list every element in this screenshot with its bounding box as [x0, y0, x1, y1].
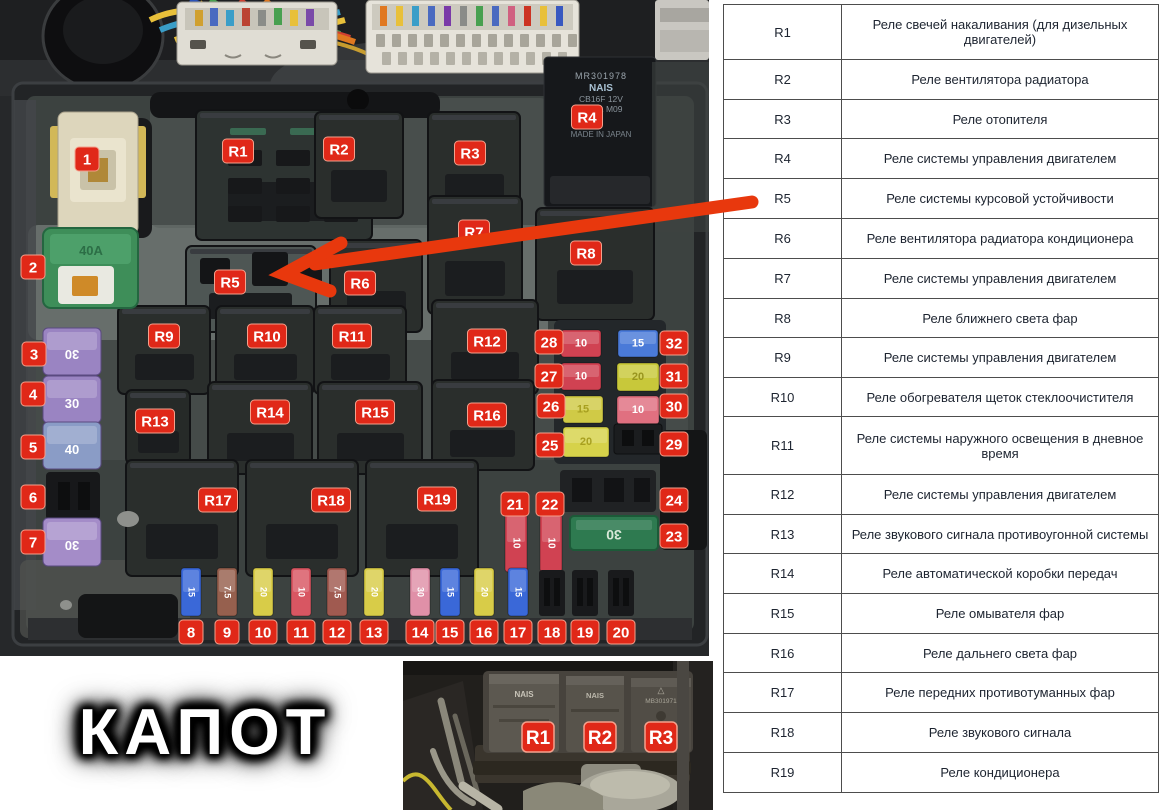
svg-text:30: 30	[666, 398, 683, 415]
svg-text:R17: R17	[204, 492, 232, 509]
svg-text:20: 20	[613, 624, 630, 641]
svg-text:28: 28	[541, 334, 558, 351]
svg-text:R14: R14	[256, 404, 284, 421]
svg-text:32: 32	[666, 335, 683, 352]
svg-text:20: 20	[632, 371, 644, 383]
svg-text:R8: R8	[576, 245, 595, 262]
svg-text:R9: R9	[154, 328, 173, 345]
svg-text:5: 5	[29, 439, 37, 456]
svg-text:20: 20	[370, 587, 380, 597]
svg-text:14: 14	[412, 624, 429, 641]
svg-text:21: 21	[507, 496, 524, 513]
svg-text:15: 15	[446, 587, 456, 597]
svg-text:NAIS: NAIS	[586, 691, 604, 700]
svg-text:3: 3	[30, 346, 38, 363]
svg-text:7.5: 7.5	[223, 586, 233, 599]
svg-text:20: 20	[259, 587, 269, 597]
svg-text:R16: R16	[473, 407, 501, 424]
svg-text:NAIS: NAIS	[514, 690, 534, 699]
svg-text:15: 15	[187, 587, 197, 597]
svg-text:10: 10	[510, 537, 521, 549]
svg-text:15: 15	[514, 587, 524, 597]
svg-text:40: 40	[65, 442, 79, 457]
svg-text:R12: R12	[473, 333, 501, 350]
svg-text:R7: R7	[464, 224, 483, 241]
svg-text:R3: R3	[460, 145, 479, 162]
svg-text:R2: R2	[329, 141, 348, 158]
svg-text:CB16F 12V: CB16F 12V	[579, 94, 623, 104]
svg-text:25: 25	[542, 437, 559, 454]
svg-text:10: 10	[255, 624, 272, 641]
svg-text:30: 30	[65, 347, 79, 362]
svg-text:20: 20	[480, 587, 490, 597]
svg-text:15: 15	[632, 337, 644, 349]
svg-text:R1: R1	[526, 728, 551, 749]
svg-text:1: 1	[83, 151, 91, 168]
svg-text:R18: R18	[317, 492, 345, 509]
svg-text:30: 30	[65, 396, 79, 411]
svg-text:12: 12	[329, 624, 346, 641]
svg-text:7.5: 7.5	[333, 586, 343, 599]
svg-text:R4: R4	[577, 109, 597, 126]
svg-text:R13: R13	[141, 413, 169, 430]
svg-text:7: 7	[29, 534, 37, 551]
svg-text:30: 30	[606, 527, 622, 543]
svg-text:10: 10	[545, 537, 556, 549]
svg-text:13: 13	[366, 624, 383, 641]
svg-text:R3: R3	[649, 728, 673, 749]
svg-text:23: 23	[666, 528, 683, 545]
svg-text:27: 27	[541, 368, 558, 385]
svg-text:30: 30	[65, 538, 79, 553]
svg-text:MB301971: MB301971	[645, 698, 677, 705]
svg-text:18: 18	[544, 624, 561, 641]
svg-text:15: 15	[442, 624, 459, 641]
svg-text:R6: R6	[350, 275, 369, 292]
svg-text:6: 6	[29, 489, 37, 506]
svg-text:8: 8	[187, 624, 195, 641]
svg-text:40A: 40A	[79, 243, 103, 258]
svg-text:31: 31	[666, 368, 683, 385]
svg-text:17: 17	[510, 624, 527, 641]
svg-text:MADE IN JAPAN: MADE IN JAPAN	[571, 130, 632, 139]
svg-text:10: 10	[632, 404, 644, 416]
svg-text:22: 22	[542, 496, 559, 513]
svg-text:MR301978: MR301978	[575, 71, 627, 81]
svg-text:16: 16	[476, 624, 493, 641]
svg-text:10: 10	[575, 337, 587, 349]
svg-text:20: 20	[580, 436, 592, 448]
svg-text:24: 24	[666, 492, 683, 509]
svg-text:26: 26	[543, 398, 560, 415]
svg-text:R1: R1	[228, 143, 247, 160]
svg-text:R11: R11	[339, 328, 366, 345]
svg-text:R10: R10	[253, 328, 281, 345]
svg-text:9: 9	[223, 624, 231, 641]
svg-text:15: 15	[577, 403, 589, 415]
svg-text:R2: R2	[588, 728, 612, 749]
svg-text:R15: R15	[361, 404, 389, 421]
svg-text:4: 4	[29, 386, 38, 403]
svg-text:△: △	[658, 685, 665, 695]
svg-text:R5: R5	[220, 274, 239, 291]
svg-text:10: 10	[297, 587, 307, 597]
svg-text:10: 10	[575, 370, 587, 382]
svg-text:11: 11	[293, 624, 309, 641]
svg-text:19: 19	[577, 624, 594, 641]
svg-text:29: 29	[666, 436, 683, 453]
svg-text:NAIS: NAIS	[589, 83, 613, 94]
svg-text:2: 2	[29, 259, 37, 276]
svg-text:R19: R19	[423, 491, 451, 508]
svg-text:30: 30	[416, 587, 426, 597]
